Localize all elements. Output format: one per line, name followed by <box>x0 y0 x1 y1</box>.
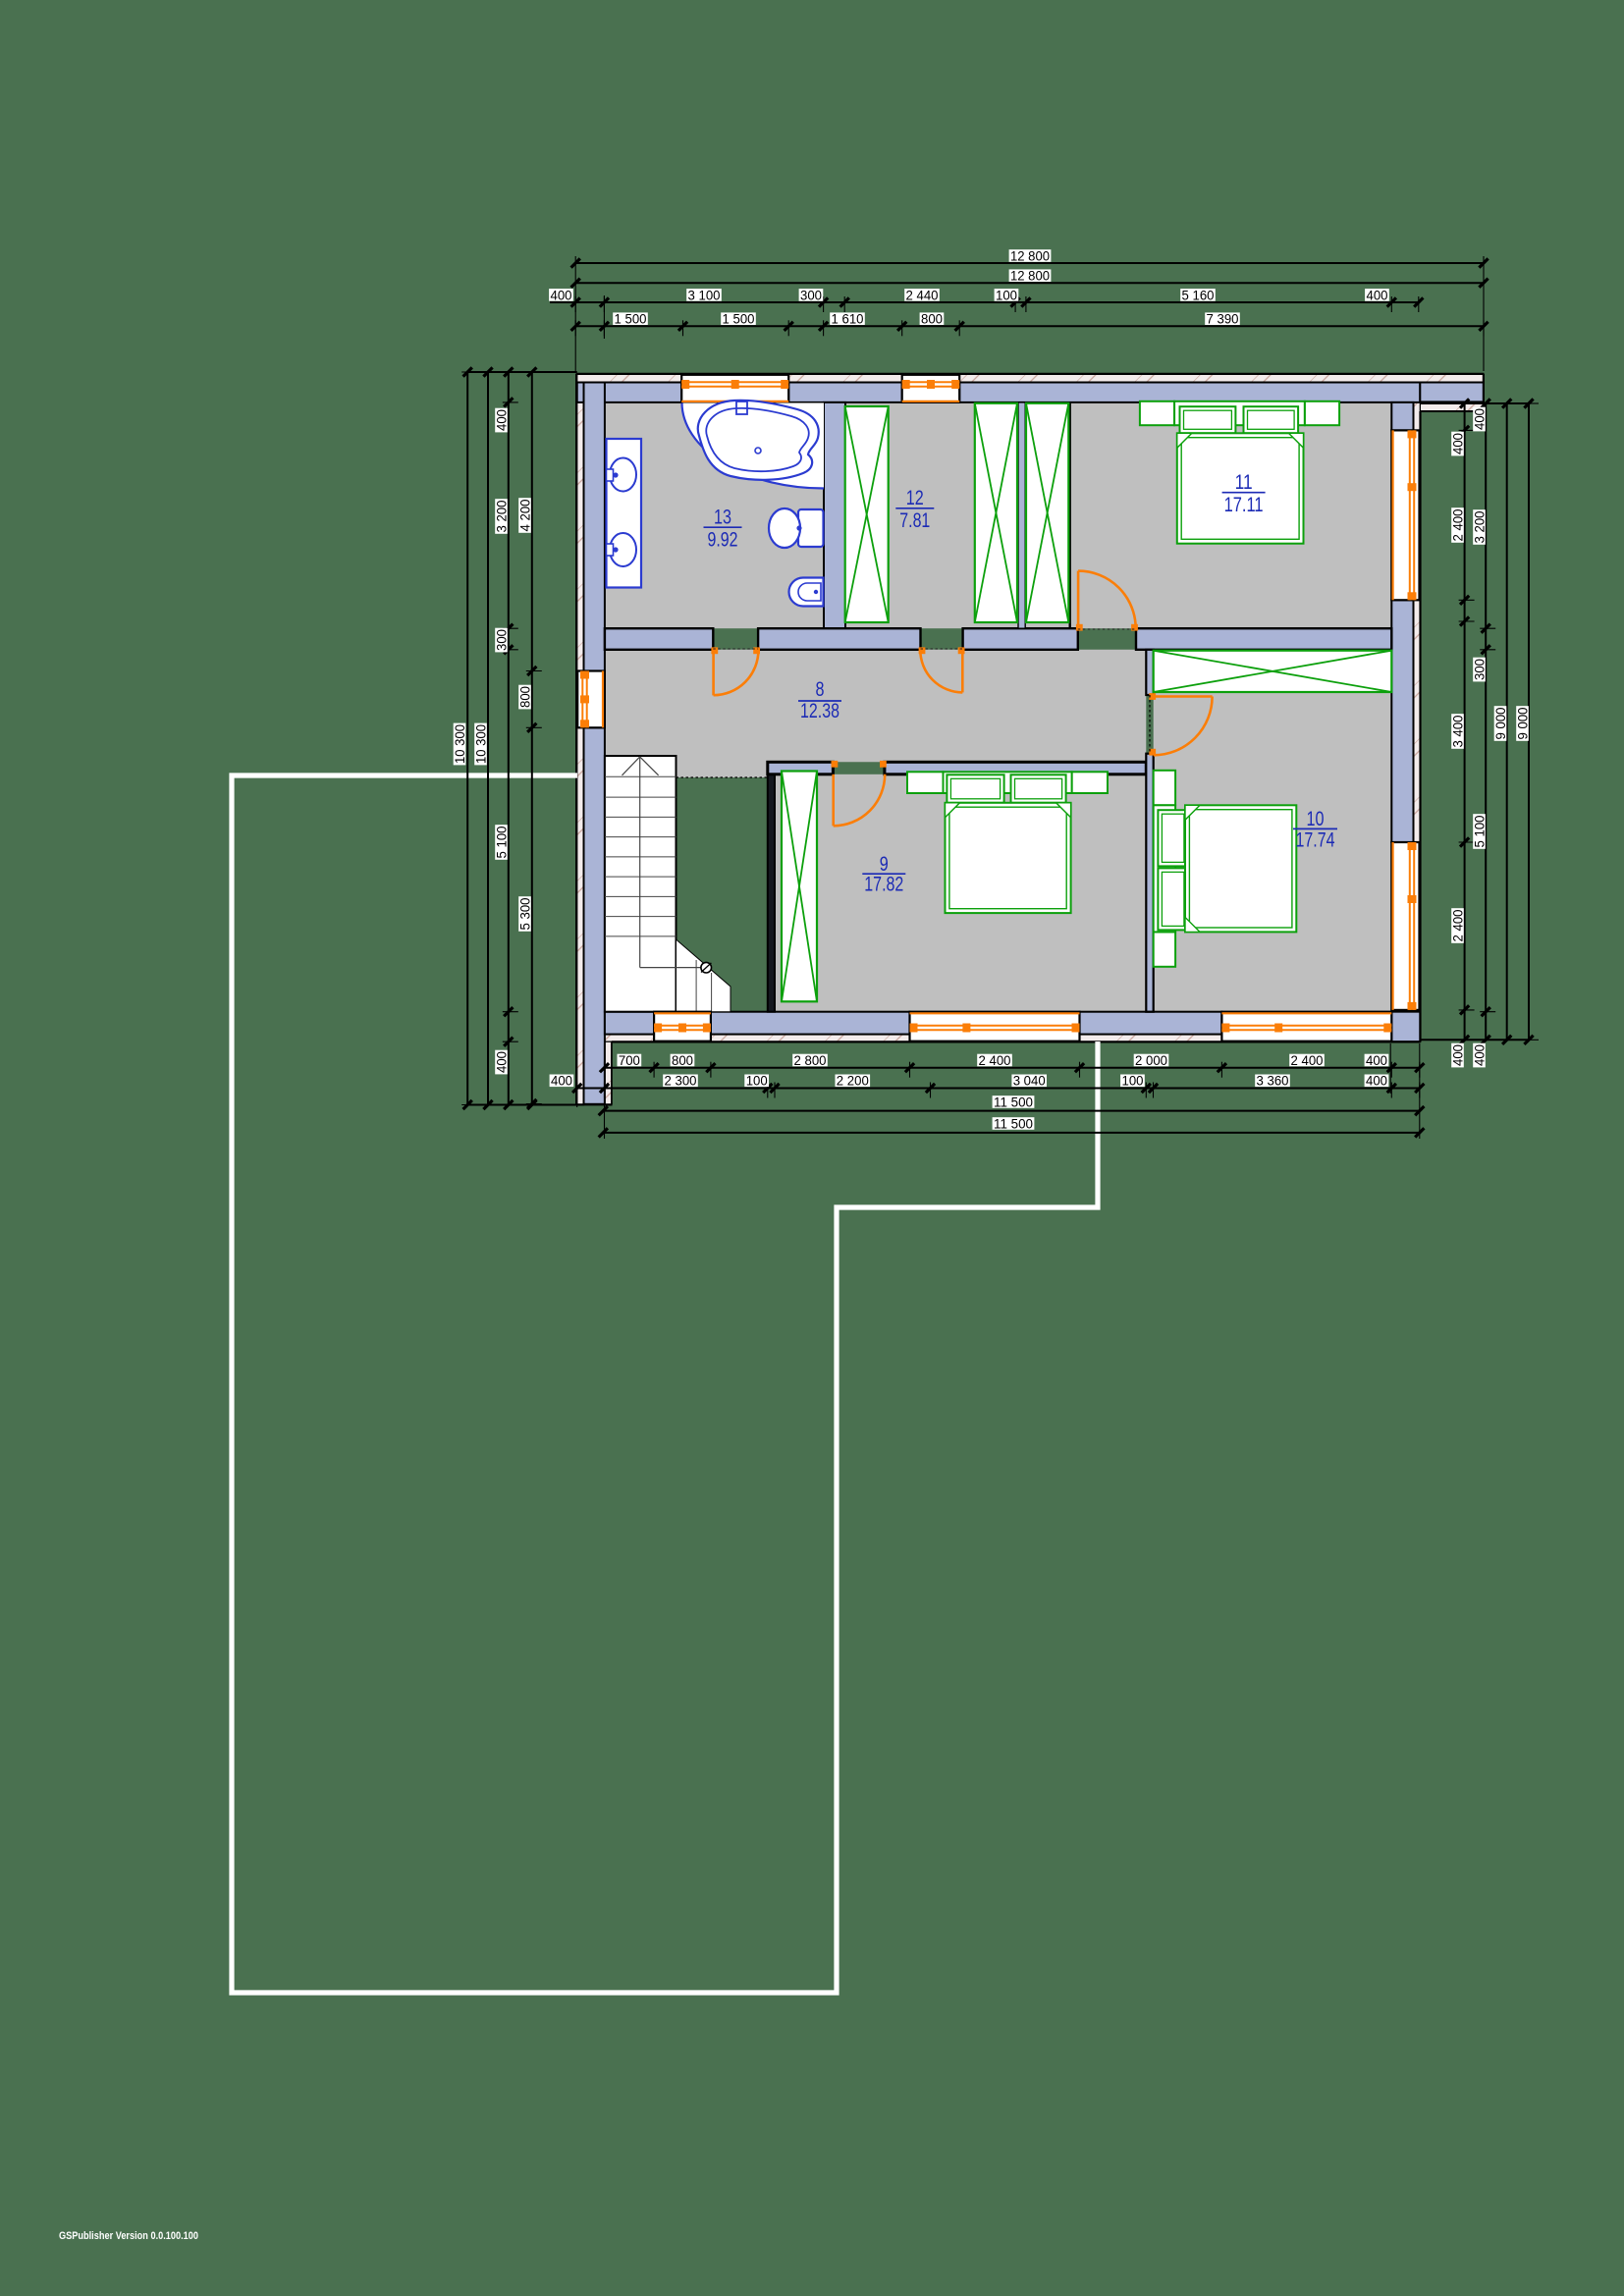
svg-text:10 300: 10 300 <box>452 724 467 764</box>
svg-text:1 610: 1 610 <box>832 311 864 327</box>
svg-text:400: 400 <box>1366 1052 1387 1068</box>
svg-text:2 800: 2 800 <box>794 1052 827 1068</box>
svg-text:3 200: 3 200 <box>493 500 509 532</box>
svg-text:5 100: 5 100 <box>493 826 509 858</box>
svg-text:2 200: 2 200 <box>837 1073 869 1089</box>
svg-text:800: 800 <box>672 1052 693 1068</box>
svg-text:7.81: 7.81 <box>899 508 930 532</box>
svg-text:100: 100 <box>746 1073 768 1089</box>
svg-text:5 100: 5 100 <box>1471 815 1487 847</box>
svg-text:100: 100 <box>996 287 1017 302</box>
svg-text:400: 400 <box>1471 408 1487 430</box>
svg-text:11 500: 11 500 <box>994 1115 1033 1131</box>
svg-text:10 300: 10 300 <box>472 724 488 764</box>
svg-text:700: 700 <box>619 1052 640 1068</box>
svg-text:3 200: 3 200 <box>1471 510 1487 543</box>
svg-text:400: 400 <box>1367 287 1388 302</box>
svg-text:2 400: 2 400 <box>1291 1052 1324 1068</box>
svg-text:2 400: 2 400 <box>979 1052 1011 1068</box>
svg-text:1 500: 1 500 <box>723 311 755 327</box>
svg-text:11 500: 11 500 <box>994 1094 1033 1109</box>
svg-text:5 160: 5 160 <box>1182 287 1215 302</box>
svg-text:3 100: 3 100 <box>688 287 721 302</box>
svg-text:3 040: 3 040 <box>1013 1073 1046 1089</box>
svg-text:9 000: 9 000 <box>1492 707 1508 739</box>
svg-text:5 300: 5 300 <box>516 897 532 930</box>
svg-text:12 800: 12 800 <box>1010 247 1050 263</box>
svg-text:4 200: 4 200 <box>516 499 532 531</box>
svg-text:400: 400 <box>1471 1044 1487 1066</box>
svg-text:400: 400 <box>551 287 572 302</box>
svg-text:100: 100 <box>1122 1073 1144 1089</box>
svg-text:300: 300 <box>493 629 509 651</box>
svg-text:1 500: 1 500 <box>615 311 647 327</box>
svg-text:12 800: 12 800 <box>1010 268 1050 284</box>
svg-text:9 000: 9 000 <box>1514 707 1530 739</box>
svg-text:3 360: 3 360 <box>1257 1073 1289 1089</box>
svg-text:400: 400 <box>1366 1073 1387 1089</box>
svg-text:800: 800 <box>516 686 532 708</box>
svg-text:7 390: 7 390 <box>1207 311 1239 327</box>
svg-text:2 400: 2 400 <box>1449 508 1465 541</box>
svg-text:9.92: 9.92 <box>708 528 738 552</box>
svg-text:2 400: 2 400 <box>1449 909 1465 941</box>
svg-text:400: 400 <box>493 409 509 431</box>
svg-text:400: 400 <box>493 1051 509 1073</box>
svg-text:3 400: 3 400 <box>1449 715 1465 747</box>
svg-text:2 440: 2 440 <box>906 287 939 302</box>
svg-text:300: 300 <box>1471 659 1487 680</box>
svg-text:8: 8 <box>816 677 825 701</box>
svg-text:17.82: 17.82 <box>864 873 903 896</box>
svg-text:12.38: 12.38 <box>800 699 839 722</box>
svg-text:11: 11 <box>1235 470 1253 494</box>
svg-text:2 300: 2 300 <box>665 1073 697 1089</box>
svg-text:400: 400 <box>1449 1044 1465 1066</box>
svg-text:400: 400 <box>551 1073 572 1089</box>
svg-text:13: 13 <box>714 506 731 529</box>
svg-text:800: 800 <box>921 311 943 327</box>
svg-text:17.11: 17.11 <box>1224 493 1264 516</box>
svg-text:12: 12 <box>906 486 924 509</box>
svg-text:10: 10 <box>1307 807 1325 830</box>
svg-text:2 000: 2 000 <box>1135 1052 1167 1068</box>
svg-text:17.74: 17.74 <box>1296 828 1335 852</box>
svg-text:300: 300 <box>800 287 822 302</box>
svg-text:400: 400 <box>1449 433 1465 454</box>
svg-text:GSPublisher Version 0.0.100.1: GSPublisher Version 0.0.100.100 <box>59 2230 198 2242</box>
